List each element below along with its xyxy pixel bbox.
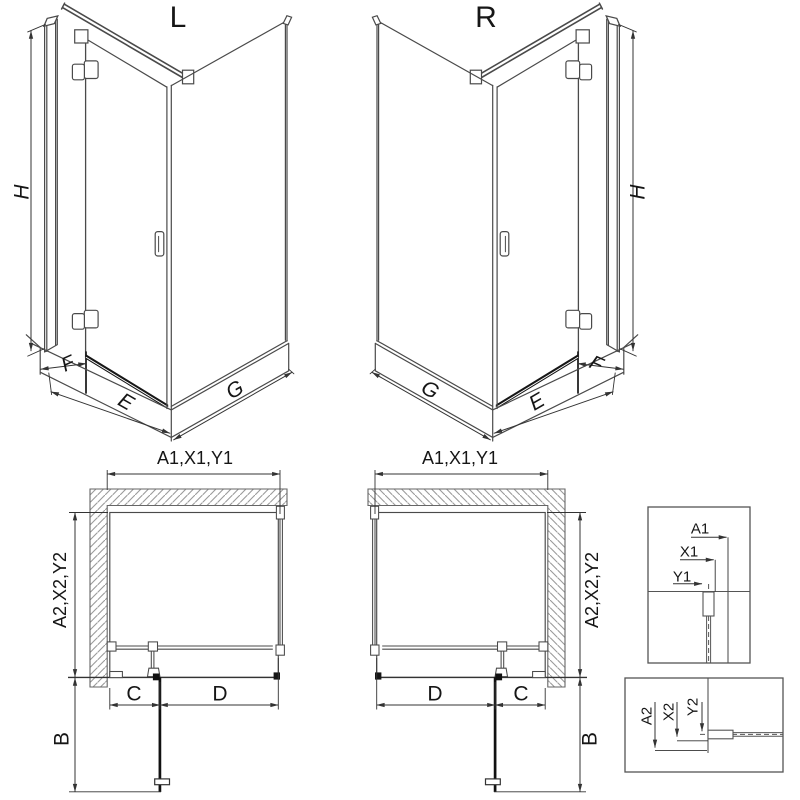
iso-left-height-label: H [12, 184, 33, 199]
plan-left-width-label: A1,X1,Y1 [157, 449, 233, 467]
iso-right-height-label: H [628, 184, 649, 199]
detail-bottom-a2-label: A2 [640, 707, 655, 725]
iso-right-variant-label: R [475, 3, 497, 33]
plan-right-b-label: B [580, 732, 601, 746]
plan-right-d-label: D [427, 684, 442, 705]
detail-bottom-x2-label: X2 [662, 703, 677, 721]
plan-view-right [368, 470, 587, 792]
plan-left-depth-label: A2,X2,Y2 [51, 552, 69, 628]
diagram-canvas: L H F E G R H F E G A1,X1,Y1 A2,X2,Y2 C … [0, 0, 800, 800]
plan-view-left [68, 470, 287, 792]
plan-left-d-label: D [212, 684, 227, 705]
plan-right-depth-label: A2,X2,Y2 [583, 552, 601, 628]
iso-left-variant-label: L [170, 3, 187, 33]
detail-top-a1-label: A1 [691, 522, 709, 537]
plan-right-width-label: A1,X1,Y1 [422, 449, 498, 467]
detail-bottom-y2-label: Y2 [686, 698, 701, 716]
detail-top-x1-label: X1 [680, 545, 698, 560]
plan-right-c-label: C [513, 684, 528, 705]
detail-top-y1-label: Y1 [673, 570, 691, 585]
plan-left-c-label: C [126, 684, 141, 705]
plan-left-b-label: B [52, 732, 73, 746]
